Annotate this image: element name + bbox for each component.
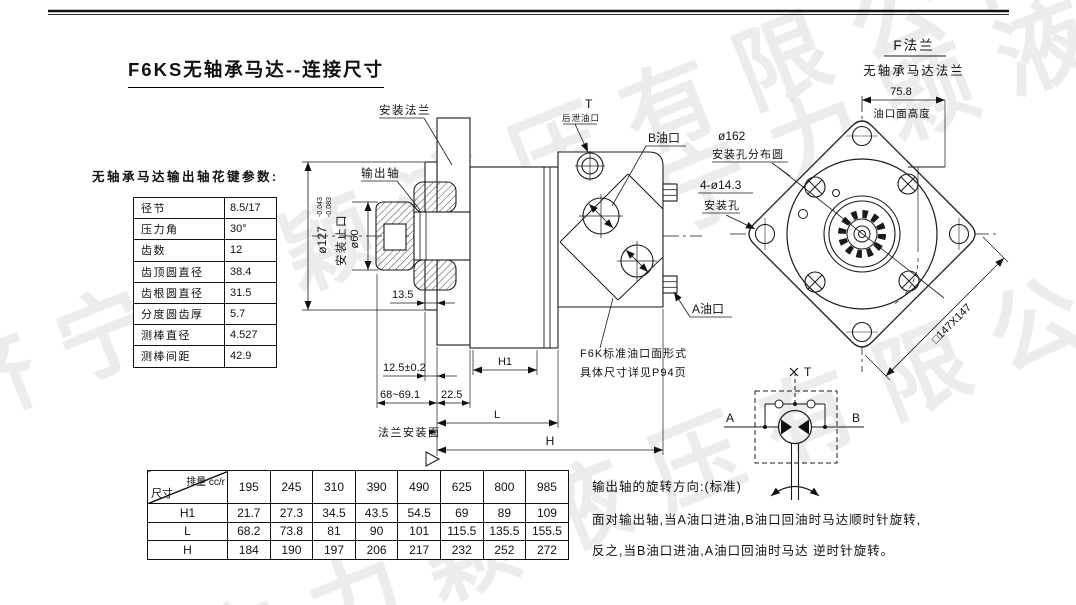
- port-note-line1: F6K标准油口面形式: [580, 346, 687, 360]
- dimension-table: 排量 cc/r 尺寸 195 245 310 390 490 625 800 9…: [147, 470, 569, 560]
- pilot-dia-dim: ø127: [315, 226, 329, 254]
- param-label: 齿顶圆直径: [134, 261, 225, 282]
- param-label: 齿数: [134, 240, 225, 261]
- dim-h1: H1: [498, 356, 512, 368]
- param-value: 30°: [225, 219, 277, 240]
- output-shaft: [376, 182, 470, 290]
- section-view: [312, 118, 702, 348]
- param-label: 分度圆齿厚: [134, 303, 225, 324]
- flange-face-label: 法兰安装面: [378, 425, 441, 439]
- diagonal-header-cell: 排量 cc/r 尺寸: [148, 471, 228, 504]
- param-value: 12: [225, 240, 277, 261]
- rotation-note-line1: 输出轴的旋转方向:(标准): [592, 476, 742, 495]
- param-label: 测棒直径: [134, 325, 225, 346]
- page-title: F6KS无轴承马达--连接尺寸: [128, 56, 384, 88]
- displacement-value: 490: [398, 471, 441, 504]
- cell-value: 54.5: [398, 504, 441, 523]
- rotation-note-line2: 面对输出轴,当A油口进油,B油口回油时马达顺时针旋转,: [592, 509, 921, 528]
- header-displacement: 排量 cc/r: [186, 473, 225, 488]
- dim-22-5: 22.5: [441, 389, 462, 401]
- cell-value: 206: [355, 541, 398, 560]
- flange-view-title: F法兰: [893, 38, 934, 53]
- pilot-tol-upper: -0.043: [317, 197, 324, 217]
- dim-68-69: 68~69.1: [380, 389, 420, 401]
- table-row: H1 21.7 27.3 34.5 43.5 54.5 69 89 109: [148, 504, 569, 523]
- dim-13-5: 13.5: [392, 289, 413, 301]
- cell-value: 217: [398, 541, 441, 560]
- table-row: H 184 190 197 206 217 232 252 272: [148, 541, 569, 560]
- rotation-arrows-icon: [771, 487, 819, 497]
- param-value: 31.5: [225, 282, 277, 303]
- valve-housing: [558, 152, 663, 307]
- param-label: 齿根圆直径: [134, 282, 225, 303]
- spline-parameter-table: 径节8.5/17 压力角30° 齿数12 齿顶圆直径38.4 齿根圆直径31.5…: [133, 197, 277, 368]
- cell-value: 68.2: [228, 522, 271, 541]
- mount-hole-label: 安装孔: [704, 198, 740, 212]
- table-row: 分度圆齿厚5.7: [134, 303, 277, 324]
- cell-value: 252: [483, 541, 526, 560]
- t-port-label: T: [585, 97, 593, 111]
- plugged-port-icon: [790, 368, 798, 376]
- shaft-dia-dim: ø60: [349, 230, 361, 249]
- cell-value: 184: [228, 541, 271, 560]
- cell-value: 69: [440, 504, 483, 523]
- param-label: 测棒间距: [134, 346, 225, 367]
- pilot-spigot-label: 安装止口: [334, 214, 348, 266]
- row-name: L: [148, 522, 228, 541]
- displacement-value: 195: [228, 471, 271, 504]
- row-name: H1: [148, 504, 228, 523]
- schematic-b-label: B: [852, 411, 860, 425]
- table-row: 径节8.5/17: [134, 198, 277, 219]
- motor-body: [470, 167, 558, 348]
- table-row: 测棒间距42.9: [134, 346, 277, 367]
- schematic-a-label: A: [726, 411, 734, 425]
- b-port-label: B油口: [648, 131, 680, 145]
- t-port-sublabel: 后泄油口: [562, 113, 600, 123]
- param-value: 4.527: [225, 325, 277, 346]
- param-value: 5.7: [225, 303, 277, 324]
- schematic-labels: A B T: [726, 365, 860, 425]
- cell-value: 21.7: [228, 504, 271, 523]
- spline-table-caption: 无轴承马达输出轴花键参数:: [92, 166, 279, 185]
- output-shaft-label: 输出轴: [361, 166, 400, 180]
- displacement-value: 800: [483, 471, 526, 504]
- displacement-value: 245: [270, 471, 313, 504]
- cell-value: 272: [526, 541, 569, 560]
- param-value: 38.4: [225, 261, 277, 282]
- table-header-row: 排量 cc/r 尺寸 195 245 310 390 490 625 800 9…: [148, 471, 569, 504]
- param-value: 8.5/17: [225, 198, 277, 219]
- table-row: L 68.2 73.8 81 90 101 115.5 135.5 155.5: [148, 522, 569, 541]
- table-row: 齿顶圆直径38.4: [134, 261, 277, 282]
- bolt-circle-dia: ø162: [718, 129, 746, 143]
- row-name: H: [148, 541, 228, 560]
- cell-value: 27.3: [270, 504, 313, 523]
- bolt-circle-label: 安装孔分布圆: [712, 147, 784, 161]
- dim-l: L: [494, 409, 500, 421]
- cell-value: 197: [313, 541, 356, 560]
- param-label: 径节: [134, 198, 225, 219]
- cell-value: 73.8: [270, 522, 313, 541]
- displacement-value: 310: [313, 471, 356, 504]
- port-face-height-label: 油口面高度: [873, 107, 931, 120]
- mount-flange-label: 安装法兰: [379, 103, 431, 117]
- cell-value: 101: [398, 522, 441, 541]
- top-rule: [48, 11, 1009, 15]
- hex-plug: [663, 184, 677, 293]
- displacement-value: 390: [355, 471, 398, 504]
- cell-value: 90: [355, 522, 398, 541]
- param-label: 压力角: [134, 219, 225, 240]
- cell-value: 89: [483, 504, 526, 523]
- hydraulic-schematic: [724, 368, 864, 500]
- cell-value: 232: [440, 541, 483, 560]
- table-row: 齿根圆直径31.5: [134, 282, 277, 303]
- rotation-note-line3: 反之,当B油口进油,A油口回油时马达 逆时针旋转。: [592, 540, 894, 559]
- cell-value: 34.5: [313, 504, 356, 523]
- flange-view: [698, 56, 1008, 380]
- flange-view-subtitle: 无轴承马达法兰: [863, 63, 965, 78]
- datasheet-page: 济宁力颖液压有限公司 济宁力颖液压有限公司 济宁力颖液压有限公司 F6KS无轴承…: [0, 0, 1076, 605]
- dim-h: H: [546, 434, 555, 448]
- param-value: 42.9: [225, 346, 277, 367]
- a-port-label: A油口: [692, 302, 724, 316]
- cell-value: 81: [313, 522, 356, 541]
- pilot-tol-lower: -0.083: [326, 197, 333, 217]
- dim-75-8: 75.8: [890, 86, 911, 98]
- port-note-line2: 具体尺寸详见P94页: [580, 365, 687, 379]
- table-row: 齿数12: [134, 240, 277, 261]
- cell-value: 109: [526, 504, 569, 523]
- table-row: 测棒直径4.527: [134, 325, 277, 346]
- table-row: 压力角30°: [134, 219, 277, 240]
- cell-value: 135.5: [483, 522, 526, 541]
- dim-12-5: 12.5±0.2: [383, 362, 426, 374]
- mount-hole-dia: 4-ø14.3: [700, 178, 742, 192]
- square-size-dim: □147X147: [930, 302, 974, 346]
- header-dimension: 尺寸: [151, 485, 173, 501]
- schematic-t-label: T: [804, 365, 812, 379]
- cell-value: 190: [270, 541, 313, 560]
- cell-value: 155.5: [526, 522, 569, 541]
- cell-value: 115.5: [440, 522, 483, 541]
- displacement-value: 625: [440, 471, 483, 504]
- displacement-value: 985: [526, 471, 569, 504]
- cell-value: 43.5: [355, 504, 398, 523]
